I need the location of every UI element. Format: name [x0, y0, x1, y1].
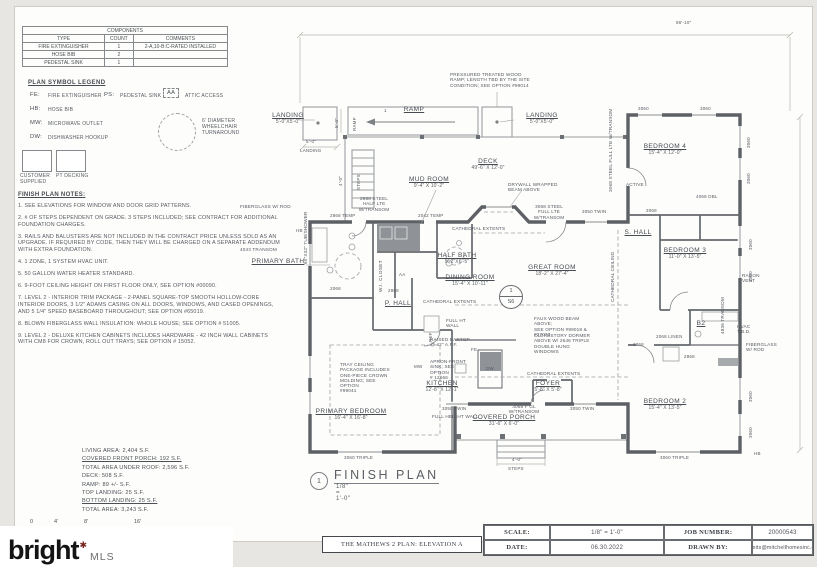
door-tag: 3068: [646, 208, 657, 213]
door-tag: 2868 TEMP: [330, 213, 355, 218]
note-full-height-wall: FULL HEIGHT WALL: [432, 414, 486, 419]
note-4043-transom: 4043 TRANSOM: [240, 247, 292, 252]
drawing-scale-text: 1/8" = 1'-0": [336, 484, 350, 502]
drawn-by-value: permits@mitchellhomesinc.com: [752, 540, 813, 555]
window-tag: 3050 TWIN: [442, 406, 466, 411]
ramp-number-tag: 1: [384, 108, 387, 113]
logo-asterisk-icon: ✱: [79, 540, 87, 551]
logo-mls-text: MLS: [90, 551, 115, 563]
bright-mls-logo: bright ✱ MLS: [0, 526, 233, 567]
drawing-number-bubble: 1: [310, 472, 328, 490]
note-fiberglass-rod-left: FIBERGLASS W/ ROD: [240, 204, 298, 209]
door-tag: 2042 TEMP: [418, 213, 443, 218]
room-label-dining-room: DINING ROOM15'-4" X 10'-11": [439, 274, 501, 288]
note-clerestory-dormer: CLERESTORY DORMER ABOVE W/ 2646 TRIPLE D…: [534, 333, 594, 354]
door-label-3068-steel-vertical: 3068 STEEL FULL LTE W/TRANSOM: [608, 109, 613, 192]
window-tag: 3060: [638, 106, 649, 111]
door-tag-closet: 4068 DBL: [696, 194, 718, 199]
room-label-bedroom-4: BEDROOM 415'-4" X 12'-0": [630, 143, 700, 157]
note-tub-shower: 60"X32" TUB/SHOWER: [303, 211, 308, 264]
section-marker: 1 S6: [499, 285, 523, 309]
scale-label: SCALE:: [484, 525, 550, 540]
job-number-value: 20000543: [752, 525, 813, 540]
dim-ramp-width: 5'-0": [334, 118, 339, 128]
drawing-title-text: FINISH PLAN: [334, 468, 439, 484]
room-label-b2: B2: [686, 320, 716, 327]
title-block: SCALE: 1/8" = 1'-0" JOB NUMBER: 20000543…: [483, 524, 814, 556]
note-active-door: ACTIVE: [626, 182, 654, 187]
attic-access-tag: AA: [399, 272, 405, 277]
dishwasher-tag: DW: [486, 366, 494, 371]
note-fiberglass-rod-right: FIBERGLASS W/ ROD: [746, 342, 784, 353]
scale-value: 1/8" = 1'-0": [550, 525, 664, 540]
note-apron-sink: APRON-FRONT SINK; SEE OPTION # 12666: [430, 359, 472, 380]
microwave-outlet-tag: MW: [414, 364, 422, 369]
room-label-foyer: FOYER5'-8" X 5'-8": [524, 380, 572, 394]
room-label-s-hall: S. HALL: [618, 229, 658, 236]
refrigerator-tag: REF: [428, 332, 433, 342]
scanned-floor-plan-sheet: COMPONENTS TYPE COUNT COMMENTS FIRE EXTI…: [0, 0, 817, 567]
note-full-ht-wall: FULL HT WALL: [446, 318, 474, 329]
room-label-bedroom-3: BEDROOM 311'-0" X 13'-5": [650, 247, 720, 261]
window-tag: 3060 TRIPLE: [660, 455, 689, 460]
room-label-ramp: RAMP: [392, 106, 436, 113]
note-hvac-tbd: HVAC T.B.D.: [737, 324, 761, 335]
door-tag: 2068: [330, 286, 341, 291]
door-label-3068-steel: 3068 STEEL FULL LTE W/TRANSOM: [530, 204, 568, 220]
door-tag: 3068: [633, 342, 644, 347]
window-tag: 3060: [748, 391, 753, 402]
note-cathedral-extents-1: CATHEDRAL EXTENTS: [452, 226, 506, 231]
door-tag: 2868: [388, 288, 399, 293]
job-number-label: JOB NUMBER:: [664, 525, 752, 540]
dim-overall-width: 86'-10": [676, 20, 691, 25]
room-label-great-room: GREAT ROOM18'-2" X 27'-4": [520, 264, 584, 278]
door-label-2868-steel: 2868 STEEL HALF LTE W/TRANSOM: [356, 196, 392, 212]
room-label-mud-room: MUD ROOM9'-4" X 10'-2": [398, 176, 460, 190]
room-label-wi-closet: W.I. CLOSET: [377, 260, 384, 292]
dim-porch-steps: 4'-0": [512, 457, 522, 462]
room-label-landing-right: LANDING5'-0"X5'-0": [514, 112, 570, 126]
logo-brand-text: bright: [8, 537, 78, 563]
dim-landing: 5'-0": [306, 139, 316, 144]
window-tag: 3050 TWIN: [582, 209, 606, 214]
hose-bib-tag: HB: [754, 451, 761, 456]
note-cathedral-ceiling: CATHEDRAL CEILING: [610, 252, 615, 302]
room-label-kitchen: KITCHEN12'-8" X 12'-1": [416, 380, 468, 394]
steps-caption-vertical: STEPS: [356, 174, 361, 190]
room-label-p-hall: P. HALL: [378, 300, 418, 307]
note-4836-transom: 4836 TRANSOM: [720, 297, 725, 334]
section-sheet: S6: [500, 297, 522, 307]
window-tag: 3060: [748, 239, 753, 250]
plan-name-box: THE MATHEWS 2 PLAN: ELEVATION A: [322, 536, 482, 553]
note-tray-ceiling: TRAY CEILING PACKAGE INCLUDES ONE-PIECE …: [340, 362, 394, 394]
window-tag: 3050 TWIN: [570, 406, 594, 411]
note-raised-bartop: RAISED BARTOP @ 42" A.F.F.: [430, 337, 472, 348]
room-label-primary-bath: PRIMARY BATH: [250, 258, 306, 265]
window-tag: 3060: [700, 106, 711, 111]
room-label-primary-bedroom: PRIMARY BEDROOM16'-4" X 16'-8": [308, 408, 394, 422]
room-label-half-bath: HALF BATH5'-2"X6'-5": [429, 252, 485, 266]
section-number: 1: [500, 286, 522, 297]
door-tag: 2868: [684, 354, 695, 359]
door-tag-linen: 2068 LINEN: [656, 334, 683, 339]
porch-steps-caption: STEPS: [508, 466, 524, 471]
note-pt-ramp: PRESSURED TREATED WOOD RAMP; LENGTH TBD …: [450, 72, 548, 88]
hose-bib-tag: HB: [296, 228, 303, 233]
fire-extinguisher-tag: FE: [471, 347, 477, 352]
note-radon-vent: RADON VENT: [742, 273, 768, 284]
dim-steps-width: 4'-0": [338, 176, 343, 186]
window-tag: 3060: [748, 427, 753, 438]
room-label-bedroom-2: BEDROOM 215'-4" X 13'-5": [630, 398, 700, 412]
dim-landing-caption: LANDING: [300, 148, 321, 153]
window-tag: 3060 TRIPLE: [344, 455, 373, 460]
date-value: 06.30.2022: [550, 540, 664, 555]
door-label-front-door: 3068 F GL W/TRANSOM: [502, 404, 546, 415]
note-drywall-beam: DRYWALL WRAPPED BEAM ABOVE: [508, 182, 570, 193]
window-tag: 3060: [746, 173, 751, 184]
window-tag: 3060: [748, 271, 753, 282]
room-label-deck: DECK49'-6" X 12'-0": [455, 158, 521, 172]
note-cathedral-extents-2: CATHEDRAL EXTENTS: [423, 299, 477, 304]
note-cathedral-extents-3: CATHEDRAL EXTENTS: [527, 371, 581, 376]
ramp-caption-vertical: RAMP: [352, 117, 357, 131]
window-tag: 3060: [746, 137, 751, 148]
room-label-landing-left: LANDING5'-0"X5'-0": [262, 112, 314, 126]
drawn-by-label: DRAWN BY:: [664, 540, 752, 555]
date-label: DATE:: [484, 540, 550, 555]
